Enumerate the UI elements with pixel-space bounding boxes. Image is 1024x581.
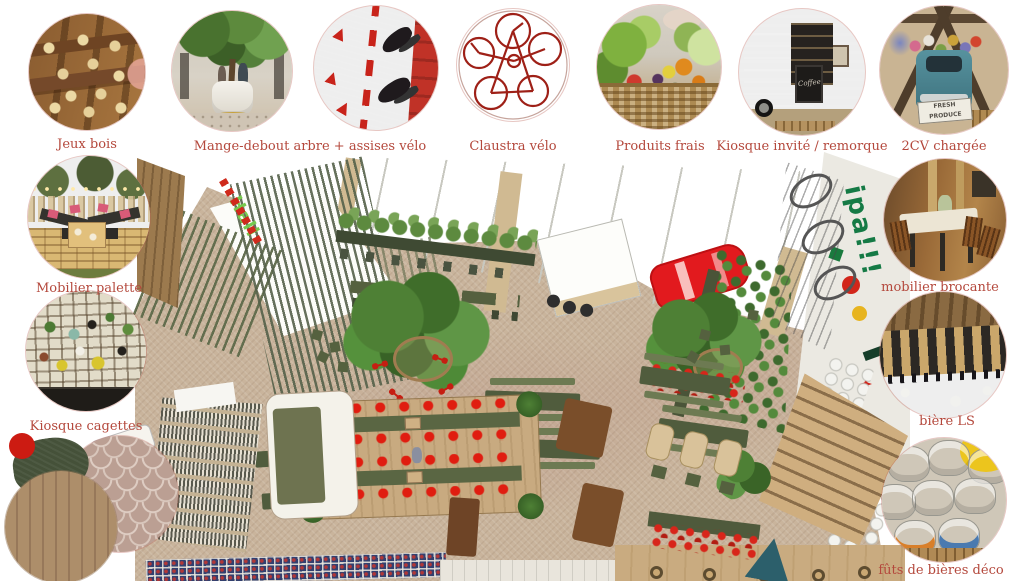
- fresh-produce-sign: FRESH PRODUCE: [917, 98, 973, 125]
- label-produits-frais: Produits frais: [615, 139, 704, 154]
- label-mobilier-brocante: mobilier brocante: [881, 280, 999, 295]
- label-jeux-bois: Jeux bois: [57, 137, 117, 152]
- callout-photo-kiosque-cagettes: [26, 291, 146, 411]
- plan-chair: [720, 345, 731, 356]
- plan-crate: [406, 471, 422, 484]
- chalkboard-text: Coffee: [798, 78, 821, 88]
- callout-photo-produits-frais: [597, 5, 721, 129]
- pink-pillow: [97, 203, 108, 213]
- plan-bench: [490, 378, 575, 385]
- label-2cv-chargee: 2CV chargée: [901, 139, 986, 154]
- dark-window: [972, 171, 996, 197]
- building-window: [831, 45, 849, 67]
- callout-photo-assises-velo: [314, 6, 438, 130]
- plan-person-figure: [412, 447, 423, 463]
- grass: [28, 269, 150, 278]
- label-futs-de-bieres: fûts de bières déco: [878, 563, 1003, 578]
- plan-brown-table: [446, 497, 480, 557]
- trailer-wheel: [755, 99, 773, 117]
- callout-photo-mange-debout-arbre: [172, 11, 292, 131]
- callout-photo-kiosque-invite: Coffee: [739, 9, 865, 135]
- plan-round-stool: [858, 566, 871, 579]
- wicker-basket: [597, 83, 721, 129]
- chalkboard: Coffee: [795, 65, 823, 103]
- beer-keg: [954, 478, 996, 514]
- beer-keg: [888, 446, 930, 482]
- dark-counter: [26, 387, 146, 411]
- pallet-step: [775, 121, 835, 131]
- label-kiosque-invite: Kiosque invité / remorque: [716, 139, 887, 154]
- callout-photo-mobilier-palette: [28, 156, 150, 278]
- wood-pallet: [882, 548, 1006, 562]
- plan-round-stool: [703, 568, 716, 581]
- callout-photo-claustra-velo: [457, 9, 569, 121]
- plan-counter-core: [273, 406, 326, 504]
- plan-round-stool: [812, 569, 825, 581]
- label-mange-debout: Mange-debout arbre + assises vélo: [194, 139, 427, 154]
- label-claustra-velo: Claustra vélo: [469, 139, 556, 154]
- plan-chair: [747, 309, 759, 321]
- beer-keg: [912, 480, 954, 516]
- dark-floor: [880, 376, 1006, 418]
- callout-photo-futs-de-bieres: [882, 438, 1006, 562]
- beer-keg: [882, 484, 916, 520]
- swatch-red: [9, 433, 35, 459]
- callout-photo-biere-ls: [880, 292, 1006, 418]
- plan-crate: [405, 417, 421, 430]
- table-leg: [940, 233, 945, 271]
- plan-white-counter: [265, 390, 359, 520]
- callout-photo-mobilier-brocante: [884, 159, 1006, 281]
- plan-mural-dot: [852, 306, 867, 321]
- wood-crates: [972, 110, 1002, 130]
- label-biere-ls: bière LS: [919, 414, 975, 429]
- plan-chair: [338, 362, 349, 373]
- label-kiosque-cagettes: Kiosque cagettes: [30, 419, 143, 434]
- label-mobilier-palette: Mobilier palette: [36, 281, 142, 296]
- beer-keg: [928, 440, 970, 476]
- plan-light-tiles: [440, 560, 640, 581]
- callout-photo-2cv-chargee: FRESH PRODUCE: [880, 6, 1008, 134]
- callout-photo-jeux-bois: [29, 14, 145, 130]
- game-pucks: [29, 14, 145, 130]
- windshield: [926, 56, 962, 72]
- pink-pillow: [69, 204, 80, 213]
- plan-round-stool: [650, 566, 663, 579]
- pallet-table: [68, 222, 106, 248]
- swatch-wood-planks: [5, 471, 117, 581]
- moodboard: Hall ipa!!!: [0, 0, 1024, 581]
- plan-chair: [329, 341, 341, 353]
- string-lights: [28, 186, 150, 194]
- red-bicycles-graphic: [457, 9, 569, 121]
- tiled-floor: [172, 113, 292, 131]
